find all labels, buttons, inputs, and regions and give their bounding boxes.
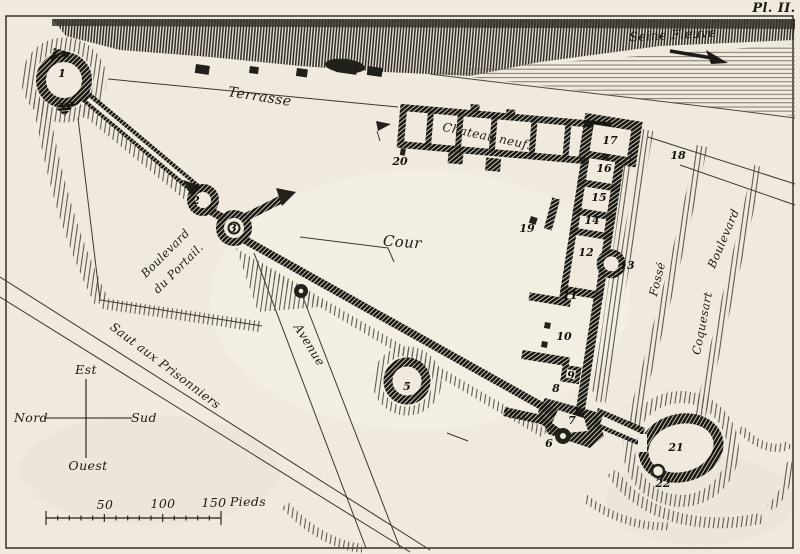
- marker-11: 11: [562, 289, 577, 302]
- marker-17: 17: [602, 134, 618, 147]
- engraved-castle-plan: Seine Fleuve Terrasse Chateau neuf. Cour…: [0, 0, 800, 554]
- scale-50: 50: [97, 497, 114, 512]
- marker-5: 5: [403, 380, 411, 393]
- marker-21: 21: [667, 441, 683, 454]
- marker-10: 10: [556, 330, 572, 343]
- marker-2: 2: [191, 194, 200, 207]
- marker-20: 20: [391, 155, 408, 168]
- marker-15: 15: [591, 191, 606, 204]
- turret-22: [652, 465, 664, 477]
- marker-14: 14: [584, 214, 599, 227]
- marker-18: 18: [670, 149, 686, 162]
- marker-1: 1: [58, 67, 66, 80]
- compass-ouest: Ouest: [68, 458, 108, 473]
- plate-number: Pl. II.: [751, 1, 795, 16]
- bastion-1: [41, 57, 87, 103]
- compass-sud: Sud: [131, 410, 157, 425]
- marker-12: 12: [578, 246, 594, 259]
- marker-19: 19: [519, 222, 535, 235]
- label-cour: Cour: [382, 232, 423, 253]
- scale-unit: Pieds: [229, 494, 266, 509]
- plan-drawing: Seine Fleuve Terrasse Chateau neuf. Cour…: [0, 0, 800, 554]
- marker-3: 3: [229, 222, 237, 235]
- compass-nord: Nord: [13, 410, 48, 425]
- compass-est: Est: [74, 362, 97, 377]
- scale-100: 100: [150, 496, 175, 511]
- marker-16: 16: [596, 162, 612, 175]
- marker-9: 9: [567, 369, 575, 382]
- marker-13: 13: [619, 259, 635, 272]
- scale-150: 150: [201, 495, 226, 510]
- marker-6: 6: [545, 437, 553, 450]
- marker-7: 7: [568, 414, 576, 427]
- marker-22: 22: [654, 477, 671, 490]
- marker-8: 8: [552, 382, 560, 395]
